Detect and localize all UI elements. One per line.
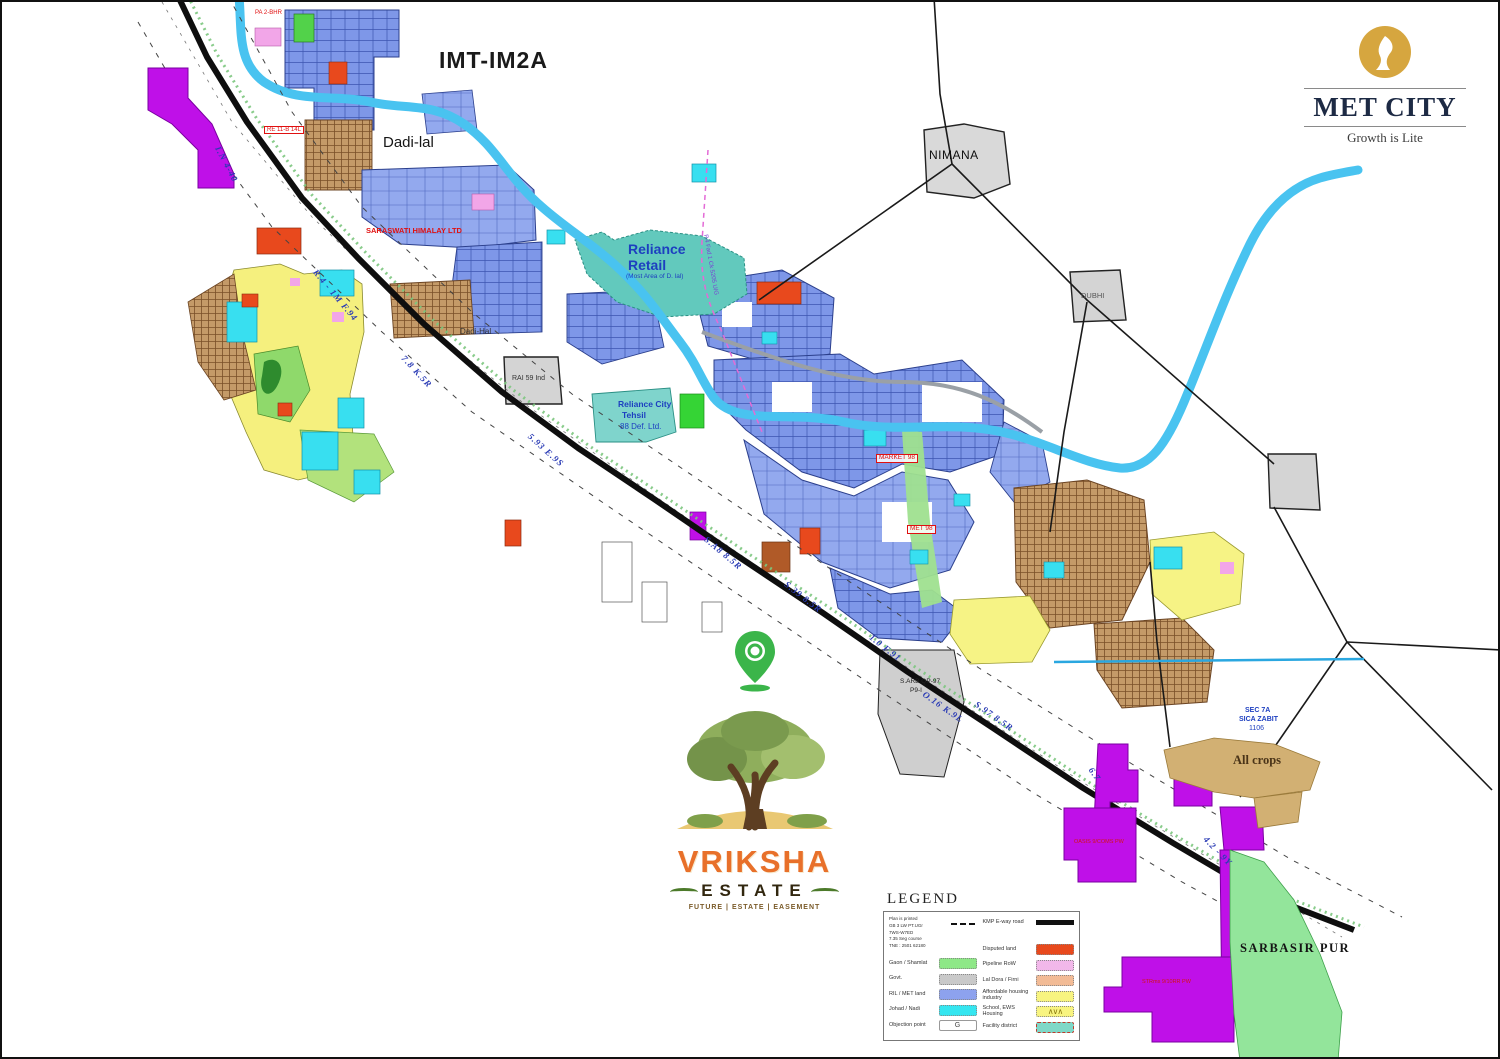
legend-info-line: 7WS-W7ED bbox=[889, 930, 977, 937]
legend-row-label: KMP E-way road bbox=[983, 920, 1024, 926]
legend-info-line: 7.35 Seg course bbox=[889, 936, 977, 943]
brand-rule-top bbox=[1304, 88, 1466, 89]
legend-row: Objection pointG bbox=[889, 1018, 977, 1034]
legend-title: LEGEND bbox=[887, 891, 1080, 908]
legend-row-label: Disputed land bbox=[983, 947, 1017, 953]
legend-info-line: TNE : 2501 62180 bbox=[889, 943, 977, 950]
legend-color-swatch bbox=[1036, 975, 1074, 986]
map-canvas: IMT-IM2ADadi-lalDadi-HalRelianceRetail(M… bbox=[0, 0, 1500, 1059]
legend-row-label: RIL / MET land bbox=[889, 992, 925, 998]
legend-row-label: School, EWS Housing bbox=[983, 1006, 1031, 1018]
legend-color-swatch: G bbox=[939, 1020, 977, 1031]
legend-right-column: KMP E-way roadDisputed landPipeline RoWL… bbox=[983, 916, 1074, 1036]
legend-color-swatch bbox=[939, 1005, 977, 1016]
legend-color-swatch bbox=[1036, 1022, 1074, 1033]
brand-rule-bottom bbox=[1304, 126, 1466, 127]
outline-plots bbox=[602, 542, 722, 632]
legend-color-swatch bbox=[939, 989, 977, 1000]
tree-illustration bbox=[665, 697, 845, 839]
legend-color-swatch bbox=[1036, 960, 1074, 971]
legend-row: RIL / MET land bbox=[889, 987, 977, 1003]
legend-row: Pipeline RoW bbox=[983, 958, 1074, 974]
legend-row-label: Lal Dora / Firni bbox=[983, 978, 1019, 984]
legend-row: Johad / Nadi bbox=[889, 1003, 977, 1019]
legend-row: Affordable housing industry bbox=[983, 989, 1074, 1005]
brand-name: MET CITY bbox=[1300, 92, 1470, 123]
legend-row-label: Johad / Nadi bbox=[889, 1007, 920, 1013]
legend-row: Lal Dora / Firni bbox=[983, 973, 1074, 989]
legend-row-label: Govt. bbox=[889, 976, 902, 982]
legend-row: KMP E-way road bbox=[983, 916, 1074, 929]
legend-color-swatch bbox=[939, 974, 977, 985]
met-city-logo: MET CITY Growth is Lite bbox=[1300, 24, 1470, 146]
vriksha-estate-logo: VRIKSHA ESTATE FUTURE | ESTATE | EASEMEN… bbox=[657, 628, 852, 911]
legend-row-label: Pipeline RoW bbox=[983, 962, 1016, 968]
legend-row: Disputed land bbox=[983, 942, 1074, 958]
brand-tagline: Growth is Lite bbox=[1300, 130, 1470, 146]
estate-tagline: FUTURE | ESTATE | EASEMENT bbox=[657, 904, 852, 911]
legend-row: Facility district bbox=[983, 1020, 1074, 1036]
estate-name: VRIKSHA bbox=[657, 844, 852, 880]
legend-color-swatch bbox=[939, 958, 977, 969]
legend-info-text: Plan is printedGB 3 LW PT.UGr7WS-W7ED7.3… bbox=[889, 916, 977, 956]
reliance-flame-icon bbox=[1357, 24, 1413, 80]
legend-color-swatch bbox=[1036, 944, 1074, 955]
sarbasir-pur-area bbox=[1230, 850, 1342, 1059]
legend-row-label: Facility district bbox=[983, 1024, 1018, 1030]
legend-row: School, EWS Housing bbox=[983, 1004, 1074, 1020]
estate-subname: ESTATE bbox=[657, 881, 852, 901]
legend-color-swatch bbox=[1036, 991, 1074, 1002]
survey-line-swatch bbox=[951, 923, 975, 925]
east-parcels bbox=[950, 480, 1244, 708]
legend-box: LEGEND Plan is printedGB 3 LW PT.UGr7WS-… bbox=[883, 891, 1080, 1041]
legend-row-label: Objection point bbox=[889, 1023, 926, 1029]
legend-info-line: Plan is printed bbox=[889, 916, 977, 923]
leaf-swoosh-icon bbox=[670, 888, 698, 896]
patchwork-zone bbox=[188, 264, 394, 502]
legend-row: Govt. bbox=[889, 972, 977, 988]
legend-color-swatch bbox=[1036, 920, 1074, 925]
location-pin-icon bbox=[732, 628, 778, 692]
legend-color-swatch bbox=[1036, 1006, 1074, 1017]
legend-row: Gaon / Shamlat bbox=[889, 956, 977, 972]
leaf-swoosh-icon bbox=[811, 888, 839, 896]
reliance-city-tehsil-area bbox=[592, 388, 676, 442]
legend-row-label: Affordable housing industry bbox=[983, 990, 1031, 1002]
legend-left-column: Plan is printedGB 3 LW PT.UGr7WS-W7ED7.3… bbox=[889, 916, 977, 1036]
legend-row-label: Gaon / Shamlat bbox=[889, 961, 927, 967]
